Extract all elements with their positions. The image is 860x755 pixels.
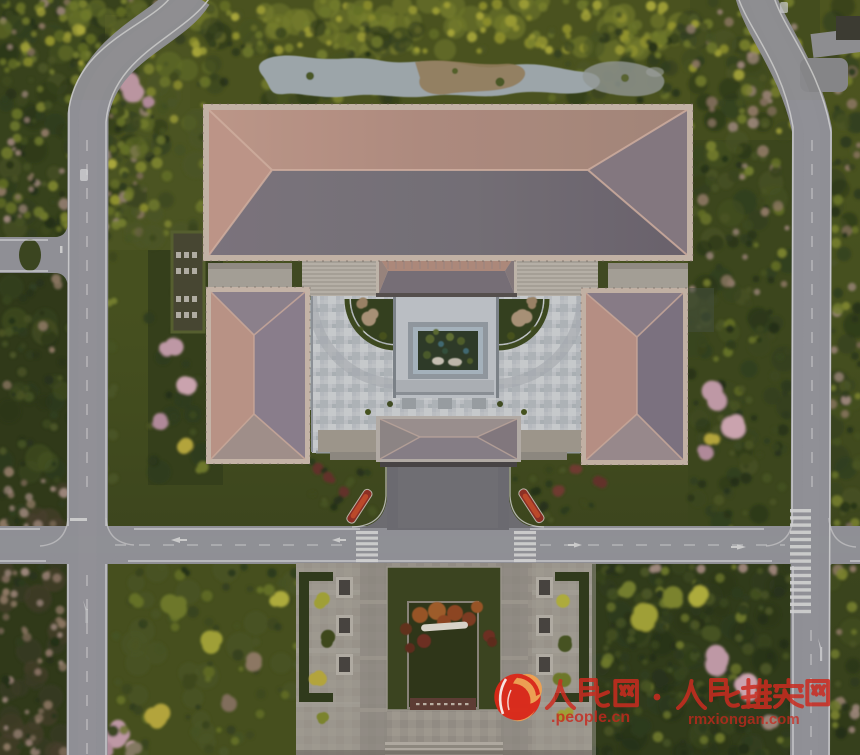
svg-text:.people.cn: .people.cn [551, 709, 630, 726]
svg-text:rmxiongan.com: rmxiongan.com [688, 711, 800, 728]
